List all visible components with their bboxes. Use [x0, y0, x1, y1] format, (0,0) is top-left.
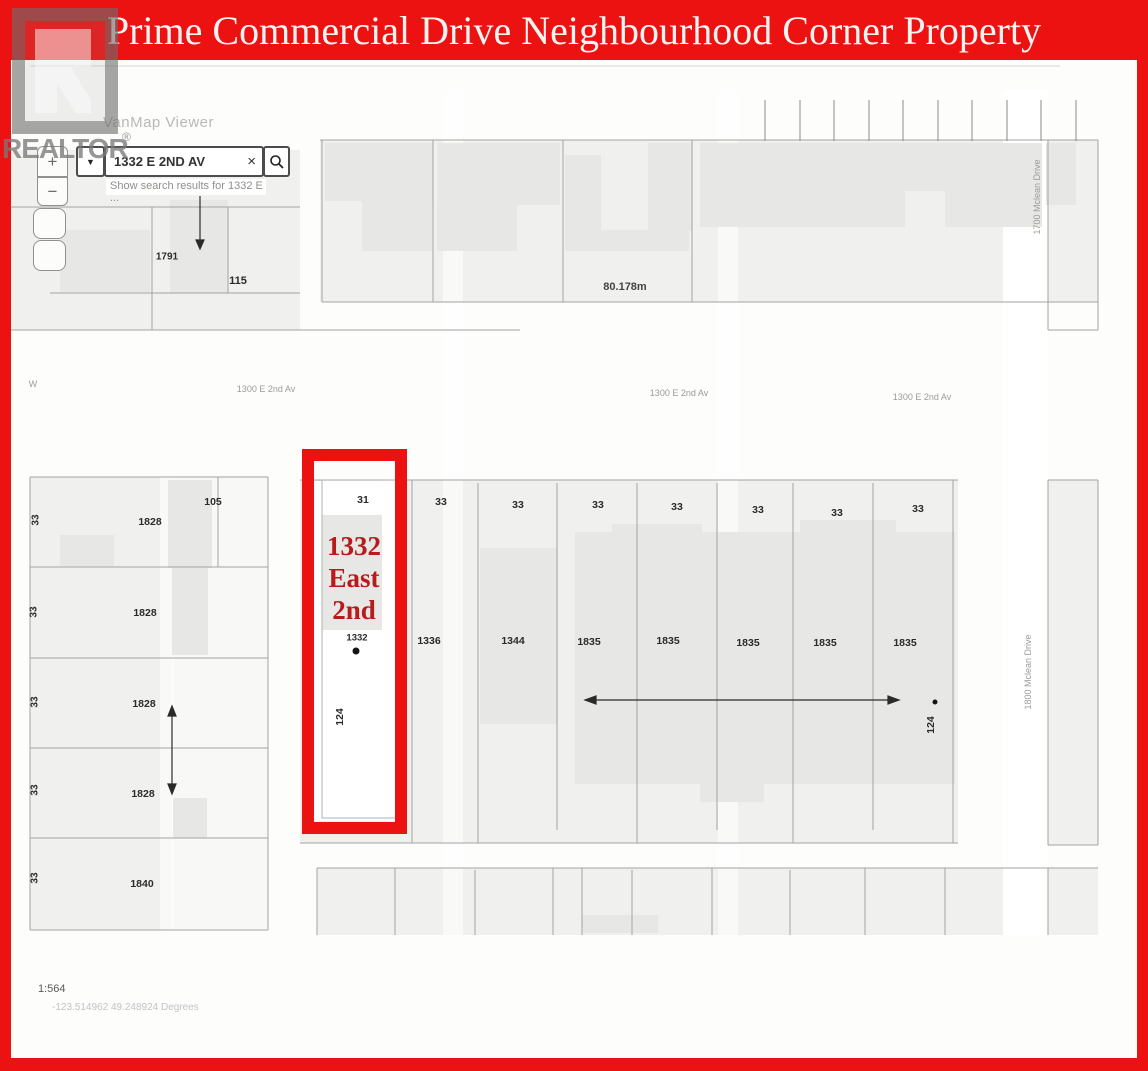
flyer-banner: Prime Commercial Drive Neighbourhood Cor…	[0, 0, 1148, 60]
frame-bottom	[0, 1058, 1148, 1071]
search-icon	[269, 154, 285, 170]
lot-width: 33	[831, 507, 843, 519]
frame-right	[1137, 0, 1148, 1071]
street-label: 1800 Mclean Drive	[1023, 634, 1033, 709]
registered-trademark-icon: ®	[122, 130, 131, 144]
lot-number: 1835	[577, 636, 600, 648]
search-button[interactable]	[263, 146, 290, 177]
search-suggestion[interactable]: Show search results for 1332 E ...	[106, 179, 266, 195]
app-title: VanMap Viewer	[103, 114, 214, 131]
lot-number: 1828	[131, 788, 154, 800]
lot-number: 1828	[138, 516, 161, 528]
tool-button[interactable]	[33, 208, 66, 239]
lot-number: 1828	[133, 607, 156, 619]
map-canvas[interactable]	[11, 60, 1137, 1058]
lot-number: 1840	[130, 878, 153, 890]
logo-r-leg	[57, 67, 91, 113]
lot-number: 1835	[813, 637, 836, 649]
lot-depth: 124	[925, 716, 937, 734]
lot-number: 1835	[893, 637, 916, 649]
lot-width: 33	[435, 496, 447, 508]
lot-width: 33	[592, 499, 604, 511]
lot-width: 33	[30, 696, 41, 707]
lot-number: 1791	[156, 252, 178, 263]
clear-search-icon[interactable]: ×	[241, 153, 262, 170]
lot-number: 1828	[132, 698, 155, 710]
zoom-out-button[interactable]: −	[37, 177, 68, 206]
lot-number: 1344	[501, 635, 524, 647]
lot-width: 33	[30, 784, 41, 795]
block-width-measurement: 80.178m	[603, 281, 646, 293]
lot-number: 115	[229, 275, 247, 287]
realtor-wordmark: REALTOR	[2, 133, 128, 165]
street-label: 1300 E 2nd Av	[893, 392, 951, 402]
lot-number: 1835	[656, 635, 679, 647]
lot-number: 1835	[736, 637, 759, 649]
search-field-box: ×	[104, 146, 264, 177]
lot-number: 105	[204, 496, 222, 508]
lot-width: 33	[512, 499, 524, 511]
tool-button[interactable]	[33, 240, 66, 271]
lot-width: 33	[31, 514, 42, 525]
map-coordinates: -123.514962 49.248924 Degrees	[52, 1002, 199, 1013]
street-label: 1300 E 2nd Av	[650, 388, 708, 398]
lot-width: 33	[671, 501, 683, 513]
street-label: W	[29, 379, 38, 389]
property-callout: 1332 East 2nd	[304, 531, 404, 627]
lot-number: 1336	[417, 635, 440, 647]
lot-width: 33	[29, 606, 40, 617]
lot-width: 33	[912, 503, 924, 515]
street-label: 1700 Mclean Drive	[1032, 159, 1042, 234]
highlight-box	[302, 449, 407, 834]
logo-r-block	[57, 29, 91, 67]
realtor-logo-icon	[12, 8, 118, 134]
lot-width: 33	[30, 872, 41, 883]
map-scale: 1:564	[38, 983, 66, 995]
street-label: 1300 E 2nd Av	[237, 384, 295, 394]
logo-r-bar	[35, 29, 57, 113]
lot-width: 33	[752, 504, 764, 516]
flyer-page: VanMap Viewer 1791 115 80.178m W 1300 E …	[0, 0, 1148, 1071]
flyer-title: Prime Commercial Drive Neighbourhood Cor…	[107, 7, 1041, 54]
